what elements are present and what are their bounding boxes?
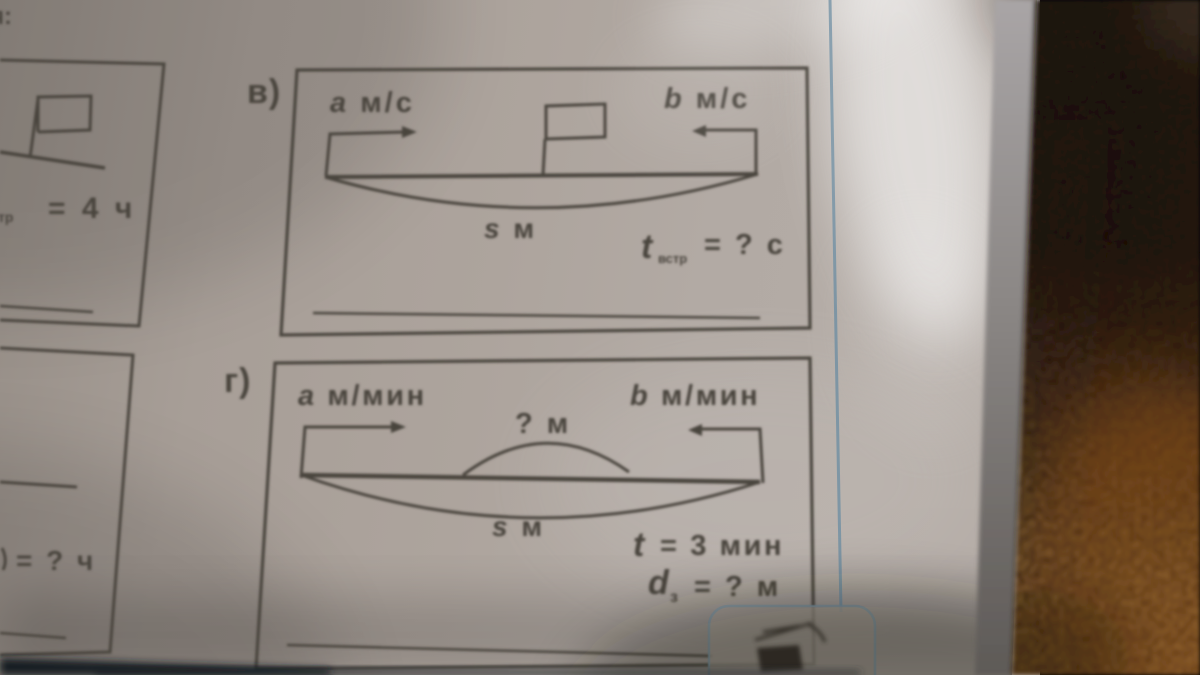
svg-text:встр: встр [658,251,687,266]
svg-text:d: d [648,564,670,602]
svg-text:= 3 мин: = 3 мин [660,530,784,562]
svg-text:= ? с: = ? с [704,229,786,261]
svg-text:г): г) [224,362,251,400]
svg-text:? м: ? м [515,408,571,440]
svg-text:s м: s м [492,511,545,542]
svg-text:= 4 ч: = 4 ч [48,192,136,225]
svg-text:я:: я: [0,3,12,30]
svg-text:= ? ч: = ? ч [16,545,96,576]
svg-text:в): в) [247,73,281,111]
svg-text:a м/с: a м/с [330,87,415,119]
svg-text:з: з [670,589,678,606]
svg-text:t: t [641,228,654,266]
svg-text:b м/мин: b м/мин [630,380,760,412]
svg-text:t: t [633,526,646,564]
svg-text:s м: s м [484,213,537,244]
svg-text:a м/мин: a м/мин [298,380,427,412]
svg-text:тр: тр [0,209,13,225]
